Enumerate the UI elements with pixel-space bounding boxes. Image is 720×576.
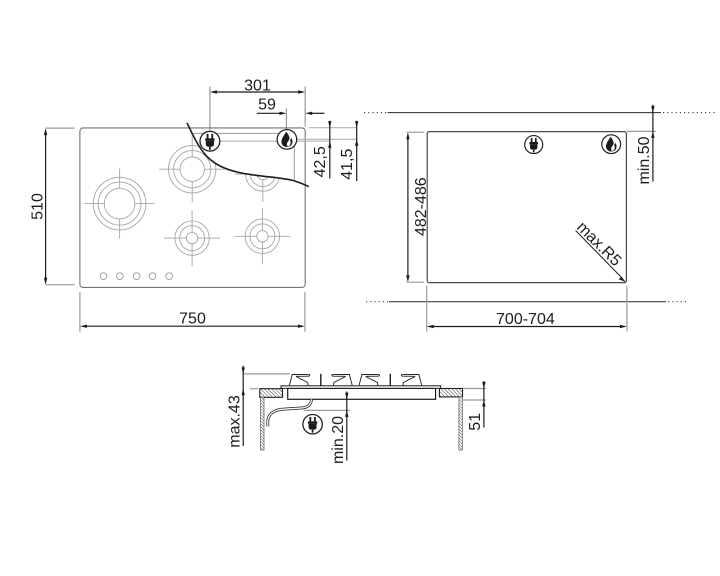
svg-text:510: 510 bbox=[29, 193, 46, 220]
svg-text:42,5: 42,5 bbox=[312, 146, 329, 177]
svg-text:max.R5: max.R5 bbox=[573, 219, 624, 270]
svg-text:700-704: 700-704 bbox=[496, 311, 555, 328]
svg-text:482-486: 482-486 bbox=[413, 177, 430, 236]
svg-text:59: 59 bbox=[258, 97, 276, 114]
svg-text:750: 750 bbox=[179, 311, 206, 328]
svg-text:301: 301 bbox=[244, 78, 271, 95]
svg-text:min.50: min.50 bbox=[636, 136, 653, 184]
svg-text:max.43: max.43 bbox=[227, 395, 244, 448]
svg-text:51: 51 bbox=[467, 413, 484, 431]
svg-text:min.20: min.20 bbox=[330, 416, 347, 464]
svg-text:41,5: 41,5 bbox=[339, 149, 356, 180]
